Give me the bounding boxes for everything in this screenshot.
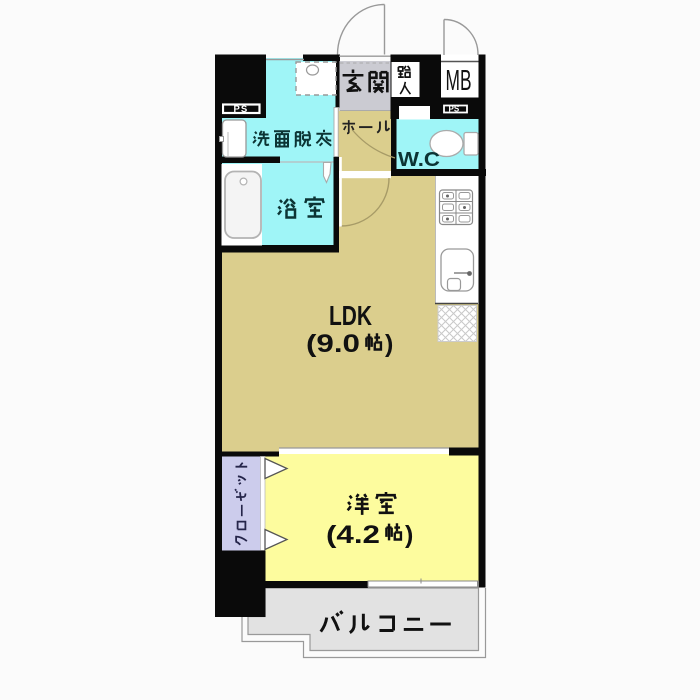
svg-text:(4.2: (4.2 bbox=[326, 521, 380, 549]
svg-text:(9.0: (9.0 bbox=[306, 330, 360, 358]
svg-text:PS: PS bbox=[449, 105, 460, 114]
svg-text:W.C: W.C bbox=[398, 149, 440, 171]
svg-text:MB: MB bbox=[446, 65, 472, 97]
svg-text:): ) bbox=[385, 330, 393, 358]
svg-text:): ) bbox=[405, 521, 413, 549]
svg-text:PS: PS bbox=[234, 104, 249, 115]
svg-text:LDK: LDK bbox=[329, 300, 372, 331]
